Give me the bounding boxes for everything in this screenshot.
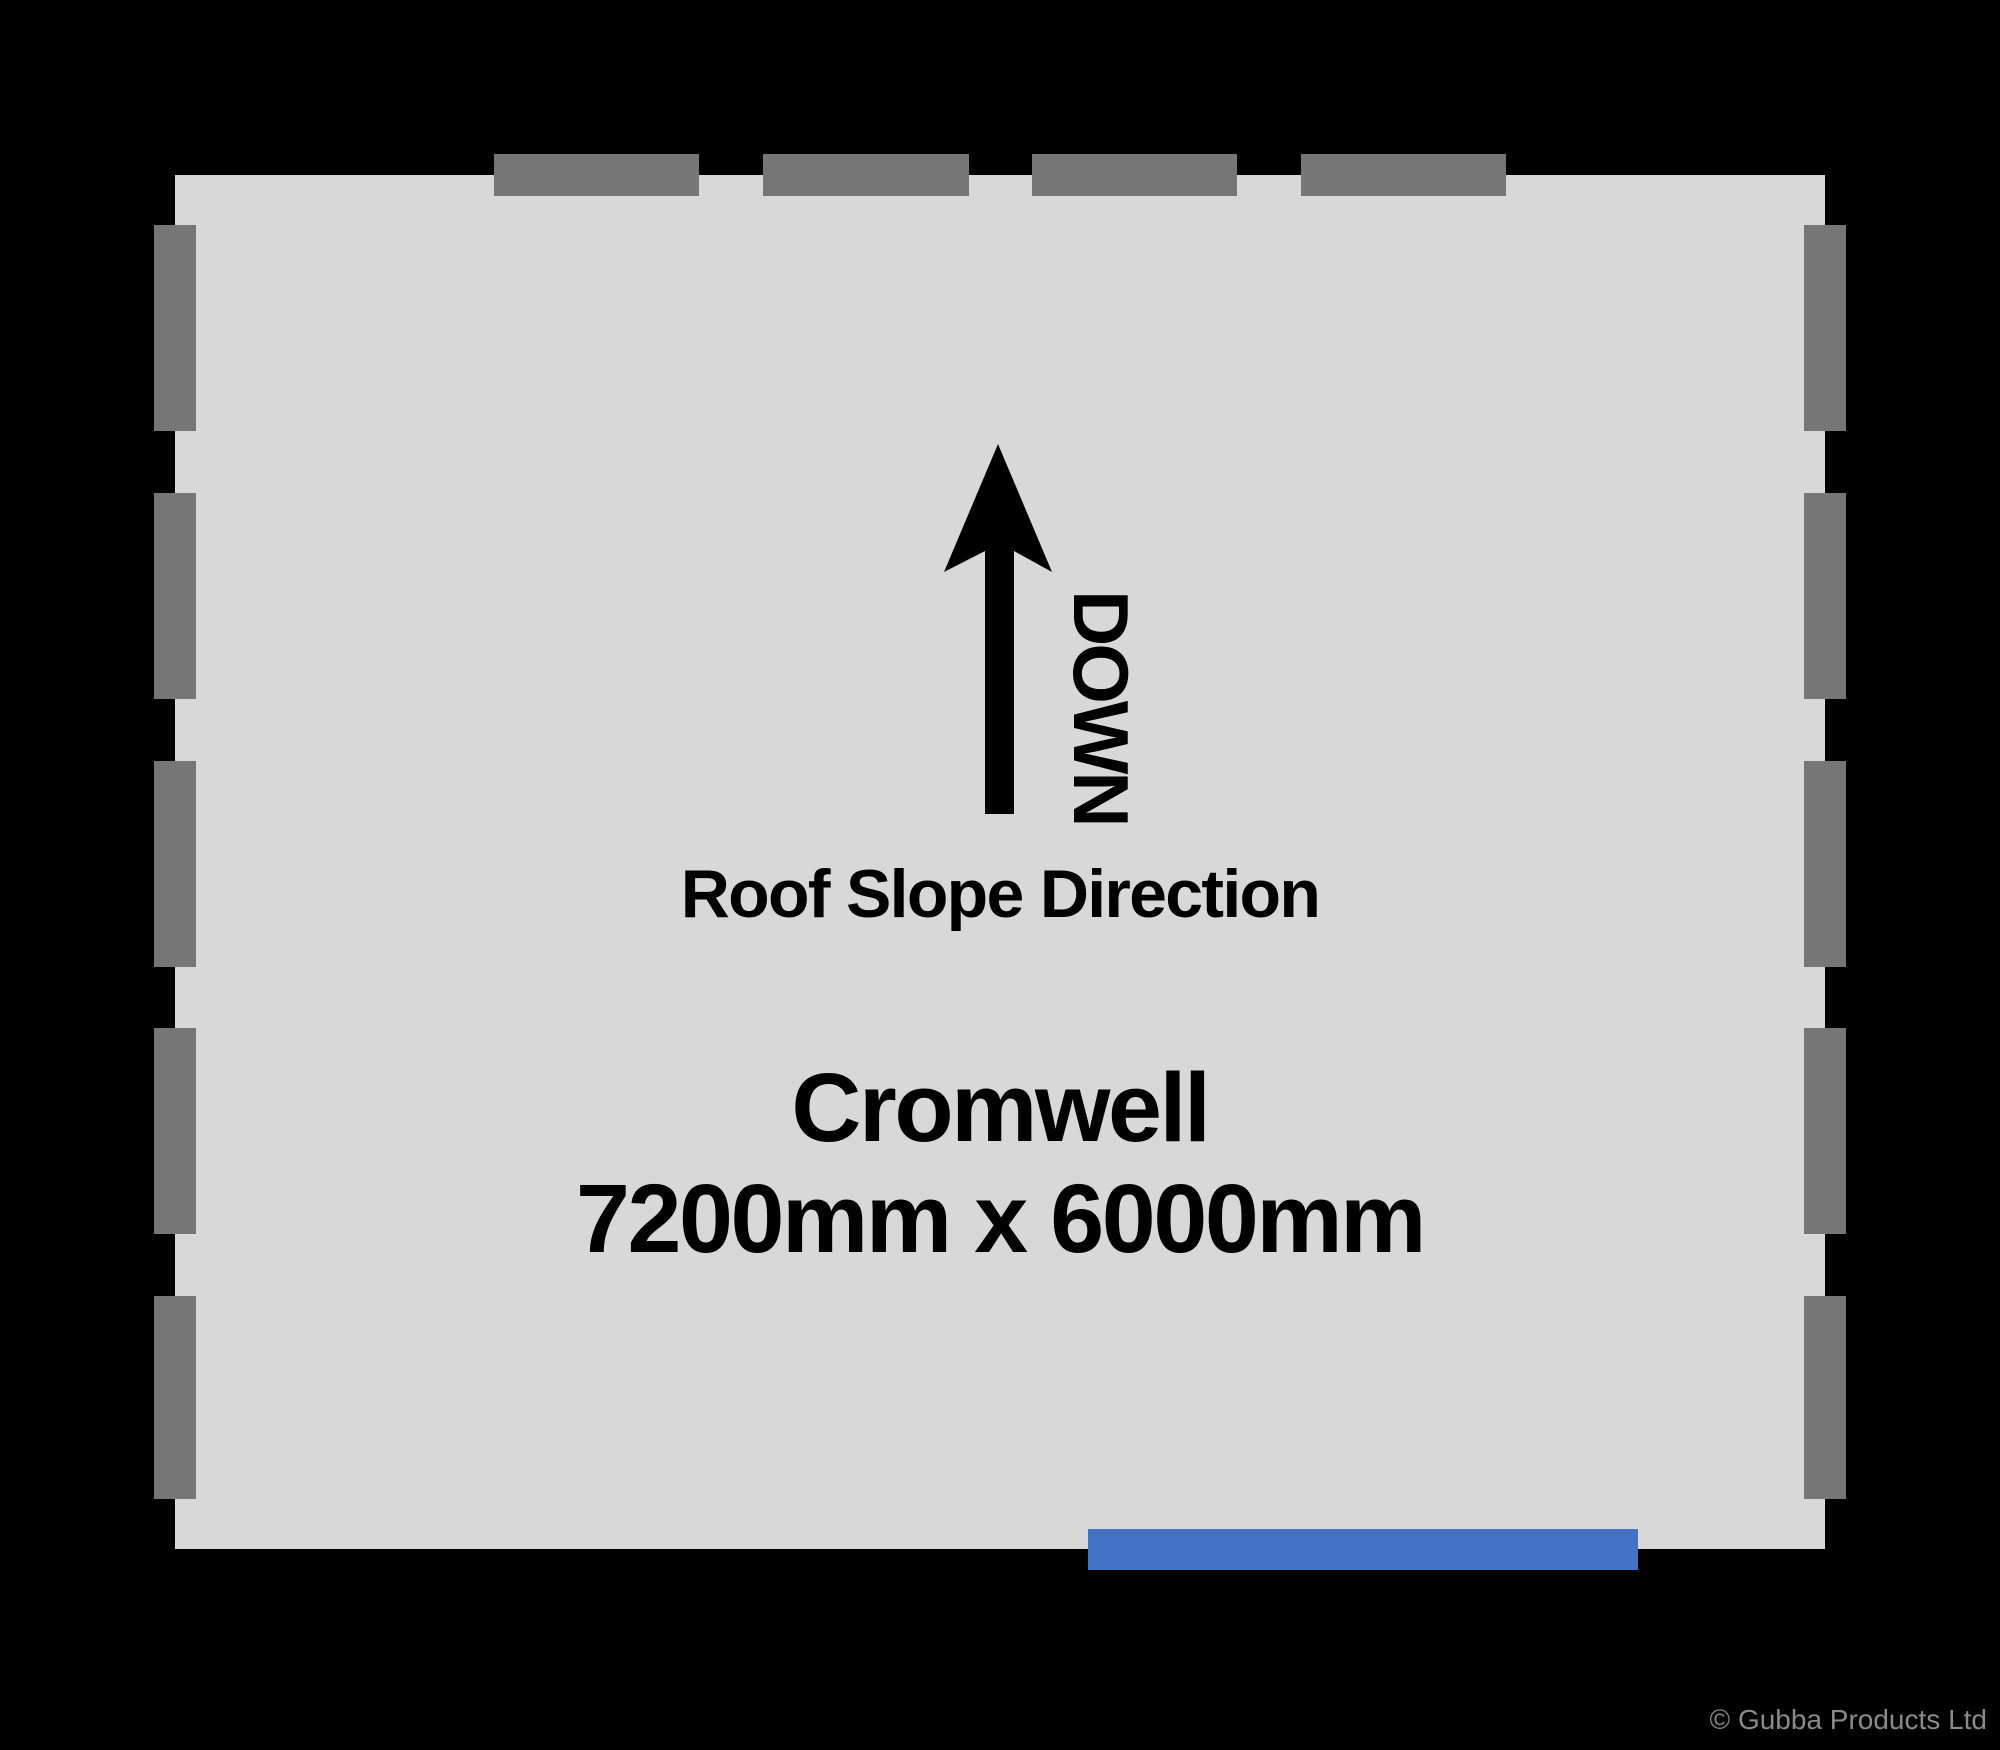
wall-dashes xyxy=(154,154,1846,1499)
copyright-label: © Gubba Products Ltd xyxy=(1710,1706,1987,1734)
wall-dash xyxy=(154,493,196,699)
wall-dash xyxy=(1032,154,1237,196)
wall-dash xyxy=(1804,225,1846,431)
roof-slope-direction-label: Roof Slope Direction xyxy=(175,860,1825,928)
wall-dash xyxy=(154,1296,196,1499)
wall-dash xyxy=(1804,493,1846,699)
door-marker xyxy=(1088,1529,1638,1570)
wall-dash xyxy=(494,154,699,196)
wall-dash xyxy=(763,154,969,196)
product-dimensions-label: 7200mm x 6000mm xyxy=(175,1170,1825,1267)
wall-dash xyxy=(154,225,196,431)
roof-slope-arrow-icon xyxy=(944,444,1052,814)
plan-canvas: DOWN Roof Slope Direction Cromwell 7200m… xyxy=(0,0,2000,1750)
wall-dash xyxy=(1804,1296,1846,1499)
down-label: DOWN xyxy=(1062,590,1140,824)
product-name-label: Cromwell xyxy=(175,1059,1825,1156)
wall-dash xyxy=(1301,154,1506,196)
